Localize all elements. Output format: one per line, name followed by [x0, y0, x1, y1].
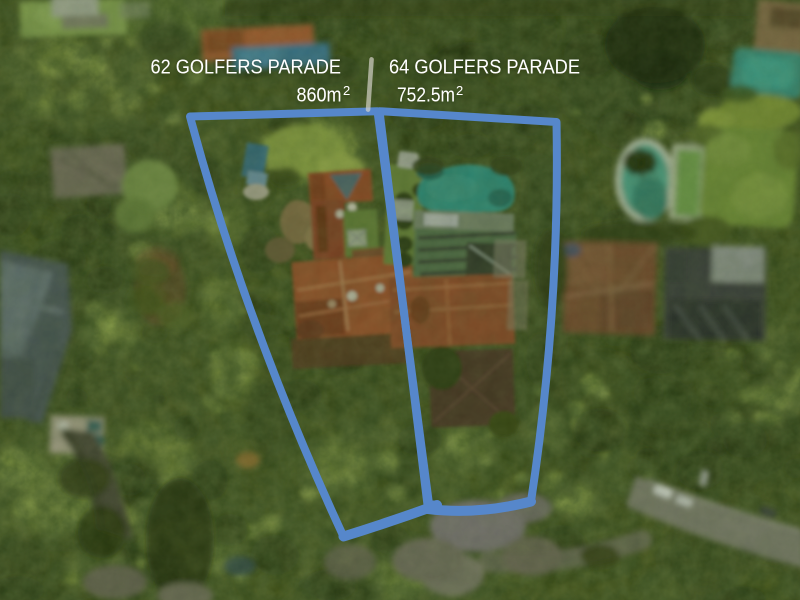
svg-text:860m: 860m	[297, 84, 342, 107]
svg-text:2: 2	[343, 83, 350, 98]
svg-text:2: 2	[456, 83, 463, 98]
svg-text:64 GOLFERS PARADE: 64 GOLFERS PARADE	[389, 56, 580, 79]
svg-text:752.5m: 752.5m	[397, 84, 455, 107]
svg-text:62 GOLFERS PARADE: 62 GOLFERS PARADE	[151, 56, 342, 79]
